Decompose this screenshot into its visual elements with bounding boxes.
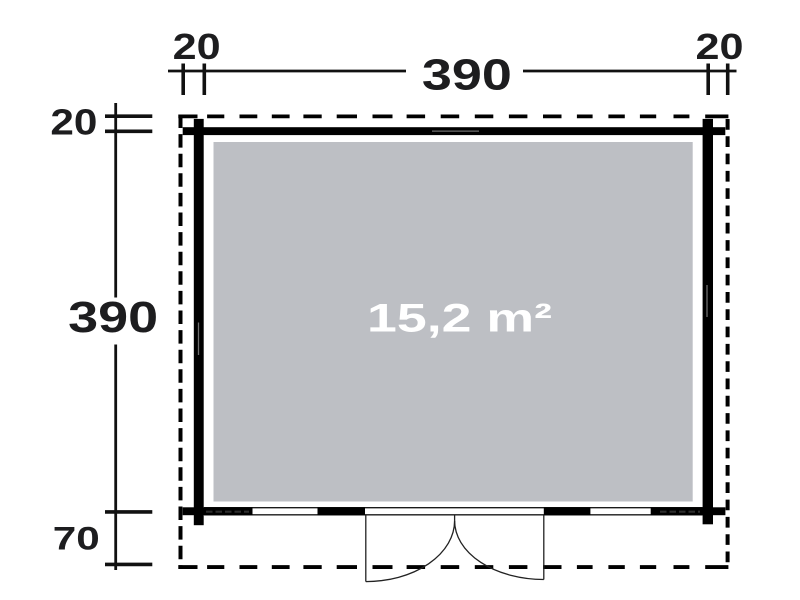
svg-text:390: 390	[422, 51, 512, 100]
svg-text:20: 20	[696, 26, 744, 67]
svg-text:15,2 m²: 15,2 m²	[367, 296, 552, 340]
svg-text:20: 20	[50, 102, 97, 143]
svg-text:20: 20	[173, 26, 221, 67]
svg-text:390: 390	[68, 293, 158, 342]
svg-text:70: 70	[53, 521, 100, 557]
